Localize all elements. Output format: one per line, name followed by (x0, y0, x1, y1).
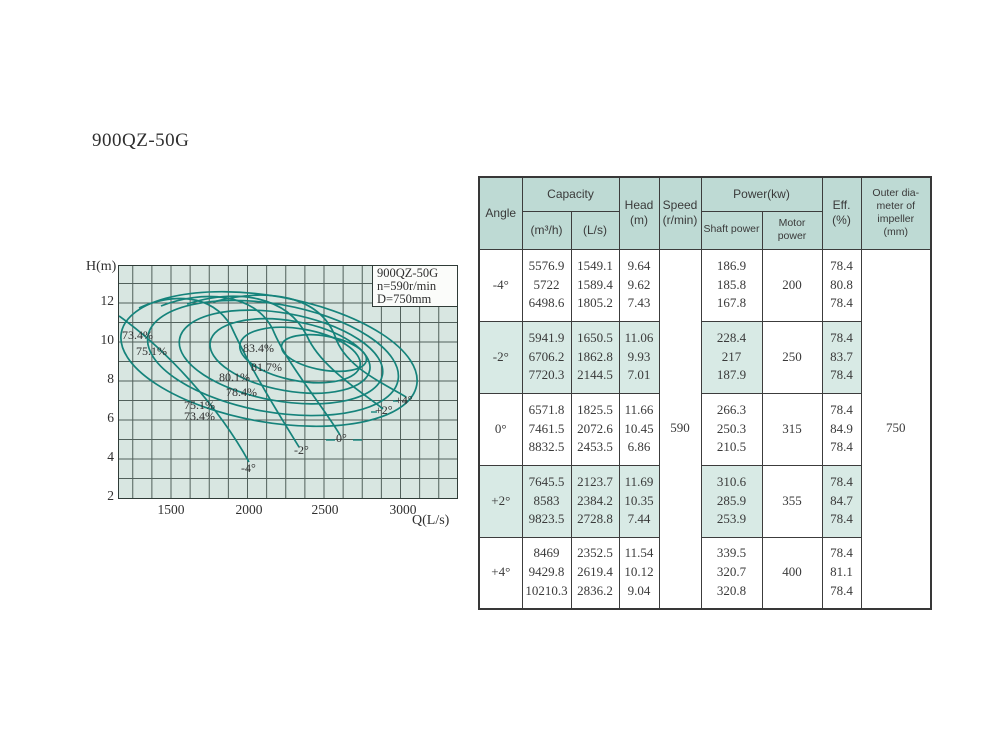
y-tick-10: 10 (88, 332, 114, 348)
cell-capacity-ls: 1650.5 1862.8 2144.5 (571, 321, 619, 393)
cell-efficiency: 78.4 81.1 78.4 (822, 537, 861, 609)
header-ls: (L/s) (571, 211, 619, 249)
cell-capacity-m3h: 8469 9429.8 10210.3 (522, 537, 571, 609)
efficiency-label-3: 81.7% (251, 360, 282, 375)
efficiency-label-0: 73.4% (122, 328, 153, 343)
cell-head: 11.54 10.12 9.04 (619, 537, 659, 609)
angle-label-0: -4° (241, 461, 256, 476)
cell-outer-diameter: 750 (861, 249, 931, 609)
header-capacity: Capacity (522, 177, 619, 211)
efficiency-label-1: 75.1% (136, 344, 167, 359)
efficiency-label-4: 80.1% (219, 370, 250, 385)
x-tick-1500: 1500 (149, 502, 193, 518)
catalog-page: { "page": { "title": "900QZ-50G" }, "cha… (0, 0, 1000, 750)
cell-head: 11.69 10.35 7.44 (619, 465, 659, 537)
cell-capacity-ls: 2123.7 2384.2 2728.8 (571, 465, 619, 537)
cell-head: 11.06 9.93 7.01 (619, 321, 659, 393)
cell-shaft-power: 266.3 250.3 210.5 (701, 393, 762, 465)
cell-angle: +2° (479, 465, 522, 537)
cell-shaft-power: 228.4 217 187.9 (701, 321, 762, 393)
cell-head: 9.64 9.62 7.43 (619, 249, 659, 321)
y-tick-12: 12 (88, 293, 114, 309)
cell-capacity-ls: 1549.1 1589.4 1805.2 (571, 249, 619, 321)
cell-capacity-m3h: 7645.5 8583 9823.5 (522, 465, 571, 537)
cell-motor-power: 315 (762, 393, 822, 465)
header-m3h: (m³/h) (522, 211, 571, 249)
y-tick-4: 4 (88, 449, 114, 465)
cell-angle: 0° (479, 393, 522, 465)
cell-angle: +4° (479, 537, 522, 609)
header-motor-power: Motor power (762, 211, 822, 249)
cell-efficiency: 78.4 84.9 78.4 (822, 393, 861, 465)
x-tick-3000: 3000 (381, 502, 425, 518)
cell-motor-power: 250 (762, 321, 822, 393)
y-tick-8: 8 (88, 371, 114, 387)
efficiency-label-2: 83.4% (243, 341, 274, 356)
cell-efficiency: 78.4 83.7 78.4 (822, 321, 861, 393)
cell-motor-power: 400 (762, 537, 822, 609)
x-tick-2000: 2000 (227, 502, 271, 518)
efficiency-label-7: 73.4% (184, 409, 215, 424)
cell-capacity-m3h: 5576.9 5722 6498.6 (522, 249, 571, 321)
header-angle: Angle (479, 177, 522, 249)
angle-label-2: 0° (336, 431, 347, 446)
cell-speed: 590 (659, 249, 701, 609)
cell-capacity-ls: 2352.5 2619.4 2836.2 (571, 537, 619, 609)
angle-label-4: +4° (395, 393, 413, 408)
header-speed: Speed (r/min) (659, 177, 701, 249)
cell-shaft-power: 339.5 320.7 320.8 (701, 537, 762, 609)
header-shaft-power: Shaft power (701, 211, 762, 249)
pump-spec-table: Angle Capacity Head (m) Speed (r/min) Po… (478, 176, 932, 610)
cell-capacity-m3h: 6571.8 7461.5 8832.5 (522, 393, 571, 465)
efficiency-label-5: 78.4% (226, 385, 257, 400)
cell-efficiency: 78.4 84.7 78.4 (822, 465, 861, 537)
cell-capacity-ls: 1825.5 2072.6 2453.5 (571, 393, 619, 465)
cell-head: 11.66 10.45 6.86 (619, 393, 659, 465)
y-tick-6: 6 (88, 410, 114, 426)
cell-capacity-m3h: 5941.9 6706.2 7720.3 (522, 321, 571, 393)
header-head: Head (m) (619, 177, 659, 249)
x-tick-2500: 2500 (303, 502, 347, 518)
header-power: Power(kw) (701, 177, 822, 211)
cell-shaft-power: 310.6 285.9 253.9 (701, 465, 762, 537)
angle-label-3: +2° (375, 403, 393, 418)
angle-label-1: -2° (294, 443, 309, 458)
cell-angle: -4° (479, 249, 522, 321)
cell-efficiency: 78.4 80.8 78.4 (822, 249, 861, 321)
cell-shaft-power: 186.9 185.8 167.8 (701, 249, 762, 321)
cell-motor-power: 200 (762, 249, 822, 321)
cell-motor-power: 355 (762, 465, 822, 537)
header-eff: Eff. (%) (822, 177, 861, 249)
table-row--4°: -4°5576.9 5722 6498.61549.1 1589.4 1805.… (479, 249, 931, 321)
cell-angle: -2° (479, 321, 522, 393)
header-outer-diameter: Outer dia- meter of impeller (mm) (861, 177, 931, 249)
y-tick-2: 2 (88, 488, 114, 504)
